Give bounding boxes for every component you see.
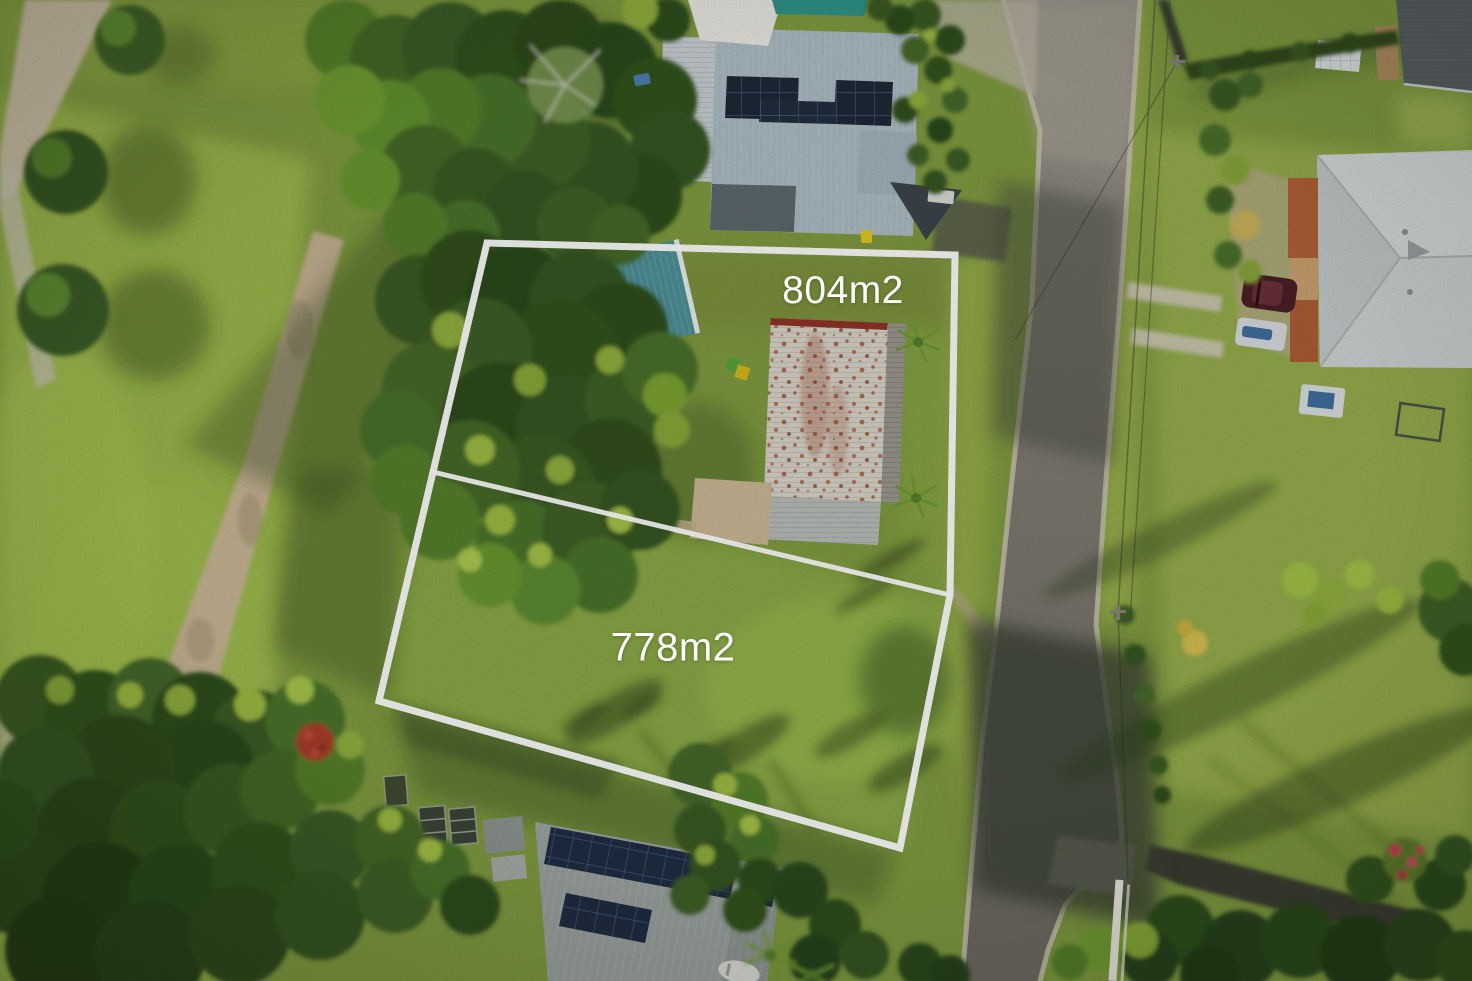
aerial-photo: 804m2 778m2 <box>0 0 1472 981</box>
grain-overlay <box>0 0 1472 981</box>
aerial-photo-scene <box>0 0 1472 981</box>
lot-area-label-804: 804m2 <box>782 269 904 313</box>
lot-area-label-778: 778m2 <box>611 626 736 671</box>
